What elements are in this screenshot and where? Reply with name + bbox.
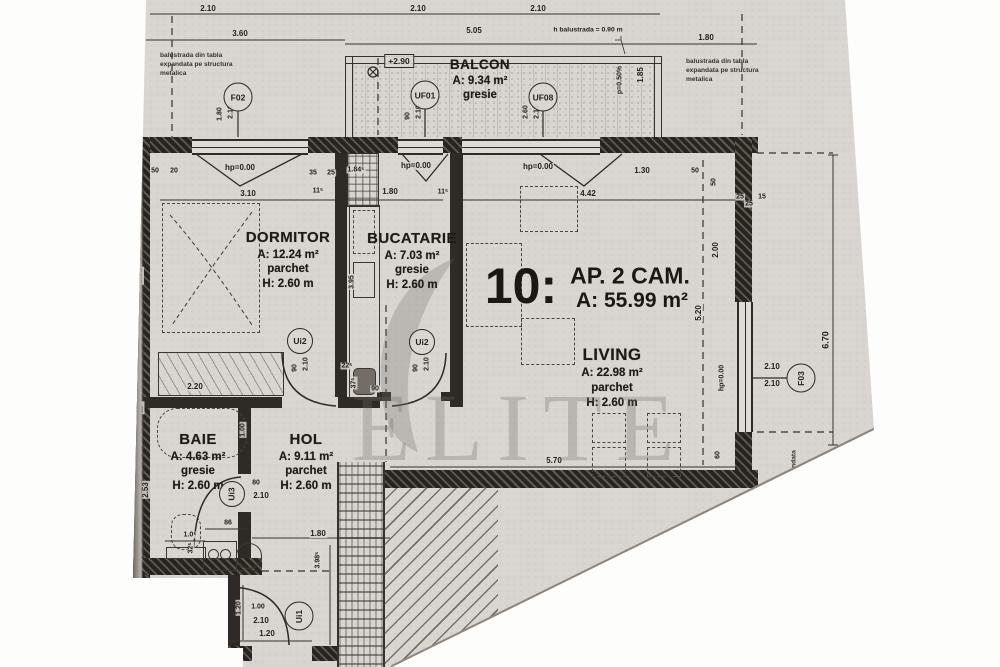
- dimension-label: 15: [757, 194, 767, 201]
- tag-uf01: UF01: [411, 81, 440, 110]
- dimension-label: 6.70: [822, 330, 831, 350]
- room-height: H: 2.60 m: [246, 277, 331, 292]
- room-area: A: 9.11 m²: [279, 450, 333, 465]
- dimension-label: 5.20: [695, 304, 703, 322]
- room-label-balcon: BALCON A: 9.34 m² gresie: [450, 56, 510, 103]
- dimension-label: 1.30: [633, 167, 651, 175]
- tag-ui2-dormitor: Ui2: [287, 328, 313, 354]
- room-name: BUCATARIE: [367, 229, 457, 249]
- room-name: BAIE: [171, 430, 226, 450]
- tag-uf08: UF08: [529, 83, 558, 112]
- tag-label: Ui2: [293, 336, 306, 346]
- dimension-label: 11⁵: [437, 189, 450, 196]
- dimension-label: 2.53: [142, 481, 150, 499]
- tag-ui2-bucatarie: Ui2: [409, 329, 435, 355]
- room-area: A: 9.34 m²: [450, 74, 510, 89]
- dimension-label: 32⁵: [188, 541, 195, 554]
- dimension-label: 2.60: [523, 104, 530, 120]
- dimension-label: 50: [690, 168, 700, 175]
- tag-label: Ui2: [415, 337, 428, 347]
- dimension-label: 22⁵: [340, 363, 353, 370]
- dimension-label: 2.00: [712, 241, 720, 259]
- dimension-label: 90: [292, 363, 299, 373]
- room-height: H: 2.60 m: [171, 479, 226, 494]
- room-area: A: 4.63 m²: [171, 450, 226, 465]
- dimension-label: 1.80: [381, 188, 399, 196]
- tag-f02: F02: [224, 83, 253, 112]
- room-floor: gresie: [367, 263, 457, 278]
- dimension-label: 25: [735, 194, 745, 201]
- dimension-label: 25: [744, 201, 754, 208]
- room-floor: gresie: [450, 88, 510, 103]
- note-balustrade-bottom: balustrada din tabla expandata: [791, 443, 800, 547]
- tag-label: UF01: [415, 90, 436, 100]
- dimension-label: 1.80: [309, 530, 327, 538]
- dimension-label: hp=0.00: [522, 163, 554, 171]
- window-opening-symbols: [196, 154, 622, 186]
- dimension-label: 1.85: [637, 66, 645, 84]
- dimension-label: 2.10: [424, 356, 431, 372]
- tag-f03: F03: [787, 364, 816, 393]
- dimension-label: 2.10: [763, 380, 781, 388]
- dimension-label: 2.10: [199, 5, 217, 13]
- level-label: +2.90: [384, 54, 414, 68]
- tag-ui3: Ui3: [219, 481, 245, 507]
- floor-plan: ELITE 10: AP. 2 CAM. A: 55.99 m² BALCON …: [0, 0, 1000, 667]
- dimension-label: 1.00: [250, 604, 266, 611]
- scanned-paper: ELITE 10: AP. 2 CAM. A: 55.99 m² BALCON …: [0, 0, 1000, 667]
- dimension-lines: [143, 14, 838, 645]
- unit-number: 10:: [485, 257, 557, 315]
- dimension-label: hp=0.00: [224, 164, 256, 172]
- dimension-label: 86: [223, 520, 233, 527]
- slope-arrow-icon: [615, 36, 625, 54]
- room-height: H: 2.60 m: [367, 278, 457, 293]
- dimension-label: 60: [715, 450, 722, 460]
- room-floor: gresie: [171, 464, 226, 479]
- room-label-bucatarie: BUCATARIE A: 7.03 m² gresie H: 2.60 m: [367, 229, 457, 293]
- note-parapet-height: h balustrada = 0.90 m: [552, 28, 623, 35]
- dimension-label: 5.05: [465, 27, 483, 35]
- room-label-dormitor: DORMITOR A: 12.24 m² parchet H: 2.60 m: [246, 228, 331, 292]
- room-name: DORMITOR: [246, 228, 331, 248]
- dimension-label: hp=0.00: [719, 364, 726, 392]
- dimension-label: 80: [251, 480, 261, 487]
- room-label-baie: BAIE A: 4.63 m² gresie H: 2.60 m: [171, 430, 226, 494]
- tag-ui1: Ui1: [285, 602, 314, 631]
- dimension-label: 2.10: [763, 363, 781, 371]
- dimension-label: hp=0.00: [400, 162, 432, 170]
- tag-label: UF08: [533, 92, 554, 102]
- note-balustrade-right: balustrada din tabla expandata pe struct…: [686, 58, 774, 85]
- unit-area: A: 55.99 m²: [576, 289, 688, 313]
- dimension-label: 20: [169, 168, 179, 175]
- dimension-label: 25: [326, 170, 336, 177]
- room-area: A: 12.24 m²: [246, 248, 331, 263]
- level-marker-icon: [368, 67, 378, 77]
- dimension-label: 1.80: [217, 106, 224, 122]
- dimension-label: 4.42: [579, 190, 597, 198]
- dimension-label: 3.10: [239, 190, 257, 198]
- tag-label: Ui3: [227, 487, 237, 500]
- room-area: A: 7.03 m²: [367, 249, 457, 264]
- dimension-label: 2.10: [303, 356, 310, 372]
- dimension-label: 90: [405, 111, 412, 121]
- dimension-label: 35: [308, 170, 318, 177]
- dimension-label: 1.20: [236, 600, 243, 616]
- dimension-label: 2.10: [529, 5, 547, 13]
- dimension-label: 2.10: [252, 617, 270, 625]
- scan-edge-left: [133, 0, 143, 578]
- watermark-text: ELITE: [352, 372, 689, 483]
- dimension-label: 1.00: [240, 422, 247, 438]
- dimension-label: 1.20: [258, 630, 276, 638]
- dimension-label: 1.0⁵: [182, 532, 197, 539]
- dimension-label: 3.95: [349, 274, 356, 290]
- bed-linen-lines: [170, 212, 252, 325]
- note-slope: p=0.50%: [617, 65, 624, 95]
- room-label-hol: HOL A: 9.11 m² parchet H: 2.60 m: [279, 430, 333, 494]
- tag-label: Ui1: [294, 609, 304, 622]
- dimension-label: 3.98⁵: [315, 551, 322, 570]
- room-floor: parchet: [279, 464, 333, 479]
- dimension-label: 2.10: [409, 5, 427, 13]
- room-name: HOL: [279, 430, 333, 450]
- dimension-label: 50: [711, 177, 718, 187]
- room-floor: parchet: [246, 262, 331, 277]
- dimension-label: 1.84⁵: [347, 167, 366, 174]
- dimension-label: 11⁵: [312, 188, 325, 195]
- dimension-label: 1.80: [697, 34, 715, 42]
- unit-type: AP. 2 CAM.: [570, 263, 690, 290]
- dimension-label: 50: [150, 168, 160, 175]
- tag-label: F03: [796, 371, 806, 386]
- room-name: LIVING: [581, 344, 642, 366]
- dimension-label: 2.20: [186, 383, 204, 391]
- tag-label: F02: [231, 92, 246, 102]
- room-name: BALCON: [450, 56, 510, 74]
- dimension-label: 3.60: [231, 30, 249, 38]
- room-height: H: 2.60 m: [279, 479, 333, 494]
- dimension-label: 2.10: [252, 492, 270, 500]
- note-balustrade-left: balustrada din tabla expandata pe struct…: [160, 52, 248, 79]
- dimension-label: 25: [211, 629, 221, 636]
